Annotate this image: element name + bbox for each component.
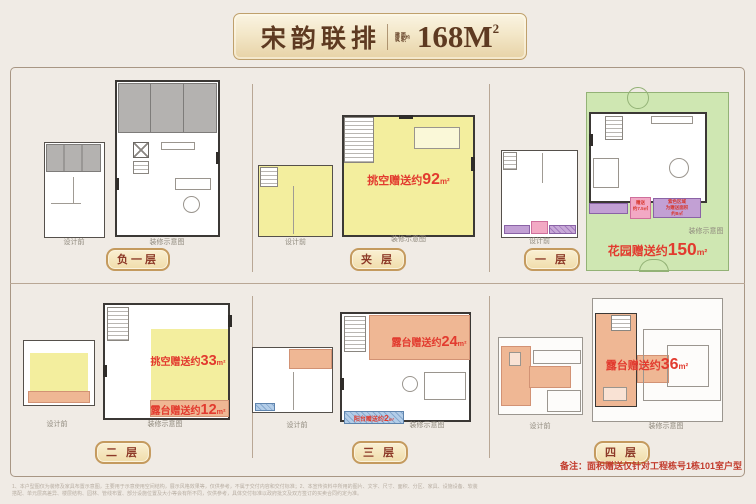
plan-before <box>252 347 333 413</box>
storage-lockers <box>46 144 101 172</box>
stairs-icon <box>344 316 366 352</box>
roof-outline <box>547 390 581 412</box>
gift-strip-purple <box>589 203 628 214</box>
furniture-outline <box>161 142 195 150</box>
plan-decorated <box>589 112 707 203</box>
plan-before <box>23 340 95 406</box>
panel-mezzanine: 挑空赠送约92m² 设计前 装修示意图 夹 层 <box>254 76 489 276</box>
panel-third-floor: 露台赠送约24m² 阳台赠送约2m² 设计前 装修示意图 三 层 <box>250 290 488 470</box>
gift-annotation-garden: 花园赠送约150m² <box>586 241 729 258</box>
furniture-outline <box>402 376 418 392</box>
interior-wall <box>51 203 81 204</box>
plan-before <box>44 142 105 238</box>
gift-annotation-void: 挑空赠送约92m² <box>342 172 475 188</box>
disclaimer-line-2: 搭配、单元层高差异、楼层结构、园林、管线布置、部分设施位置及大小等会有所不同，仅… <box>12 491 712 498</box>
gift-label: 挑空赠送约 <box>367 175 422 187</box>
area-number: 168M <box>417 19 493 54</box>
gift-annotation-terrace: 露台赠送约36m² <box>597 357 697 373</box>
gift-strip-purple-hatched <box>549 225 576 234</box>
gift-label: 花园赠送约 <box>608 244 668 258</box>
gift-annotation-terrace: 露台赠送约12m² <box>142 403 234 418</box>
furniture-outline <box>175 178 211 190</box>
terrace-area <box>28 391 90 403</box>
caption-after: 装修示意图 <box>342 236 475 244</box>
gift-unit: m² <box>440 177 450 186</box>
roof-outline <box>533 350 581 364</box>
gift-annotation-void: 挑空赠送约33m² <box>142 354 234 369</box>
remark-text: 备注：面积赠送仅针对工程栋号1栋101室户型 <box>560 459 742 472</box>
balcony-area <box>255 403 275 411</box>
area-value: 168M2 <box>417 21 499 52</box>
gift-value: 33 <box>201 353 217 369</box>
area-seal: 建筑 面积 约 <box>394 32 411 42</box>
gift-note-purple: 紫色区域 为赠送面积 约8㎡ <box>653 199 701 217</box>
floor-badge: 负一层 <box>106 248 170 271</box>
furniture-outline <box>183 196 200 213</box>
gift-unit: m² <box>217 358 226 367</box>
interior-wall <box>73 177 74 203</box>
wall-tick <box>116 178 119 190</box>
panel-first-floor: 赠送 约7.5㎡ 紫色区域 为赠送面积 约8㎡ 花园赠送约150m² 设计前 装… <box>491 76 745 276</box>
furniture-outline <box>509 352 521 366</box>
wall-tick <box>103 365 107 377</box>
gift-note-line: 约8㎡ <box>653 211 701 217</box>
floor-badge: 一 层 <box>524 248 580 271</box>
caption-after: 装修示意图 <box>387 422 467 430</box>
wall-tick <box>216 152 219 164</box>
caption-after: 装修示意图 <box>671 228 741 236</box>
gift-box-pink <box>531 221 548 234</box>
gift-value: 36 <box>661 356 679 373</box>
stairs-icon <box>260 167 278 187</box>
panel-basement: 设计前 装修示意图 负一层 <box>18 76 246 276</box>
gift-unit: m² <box>458 339 467 348</box>
caption-before: 设计前 <box>267 422 327 430</box>
divider-vertical <box>252 84 253 272</box>
plan-decorated <box>115 80 220 237</box>
gift-note-line: 约7.5㎡ <box>630 206 651 212</box>
stairs-icon <box>344 117 374 163</box>
stairs-icon <box>107 307 129 341</box>
disclaimer-line-1: 1、本户型图仅为装修及家具布置示意图，主要用于示意使用空间结构，展示风格效果等，… <box>12 484 712 491</box>
plan-before <box>258 165 333 237</box>
dining-table-outline <box>669 158 689 178</box>
gift-label: 挑空赠送约 <box>151 357 201 368</box>
wall-tick <box>340 378 344 390</box>
panel-fourth-floor: 露台赠送约36m² 设计前 装修示意图 四 层 <box>490 290 746 470</box>
stairs-icon <box>133 161 149 174</box>
gift-unit: m² <box>697 247 708 257</box>
void-area <box>30 353 88 393</box>
caption-after: 装修示意图 <box>117 239 217 247</box>
title-divider <box>387 24 388 50</box>
floor-badge: 二 层 <box>95 441 151 464</box>
bed-outline <box>593 158 619 188</box>
terrace-area <box>529 366 571 388</box>
bed-outline <box>424 372 466 400</box>
floor-badge: 三 层 <box>352 441 408 464</box>
gift-unit: m² <box>217 407 226 416</box>
seal-text-col1: 建筑 <box>394 32 399 42</box>
gift-label: 露台赠送约 <box>606 360 661 372</box>
caption-before: 设计前 <box>510 423 570 431</box>
plan-decorated <box>340 312 471 422</box>
wall-tick <box>399 115 413 119</box>
caption-before: 设计前 <box>258 239 333 247</box>
stairs-icon <box>611 315 631 331</box>
elevator-icon <box>133 142 149 158</box>
stairs-icon <box>605 116 623 140</box>
divider-horizontal <box>10 283 745 284</box>
garden-tree-icon <box>627 87 649 109</box>
gift-value: 150 <box>668 239 697 259</box>
wall-tick <box>228 315 232 327</box>
project-title: 宋韵联排 <box>261 19 381 55</box>
gift-label: 阳台赠送约 <box>354 417 384 423</box>
disclaimer-text: 1、本户型图仅为装修及家具布置示意图，主要用于示意使用空间结构，展示风格效果等，… <box>12 484 712 498</box>
floorplan-poster: 宋韵联排 建筑 面积 约 168M2 设计前 装修示 <box>0 0 756 504</box>
caption-before: 设计前 <box>27 421 87 429</box>
gift-value: 12 <box>201 402 217 418</box>
seal-text-col2: 面积 <box>400 32 405 42</box>
title-banner: 宋韵联排 建筑 面积 约 168M2 <box>233 13 527 60</box>
parking-area <box>118 83 217 133</box>
caption-after: 装修示意图 <box>123 421 207 429</box>
garden-gate-icon <box>639 259 669 272</box>
gift-annotation-terrace: 露台赠送约24m² <box>379 335 479 350</box>
panel-second-floor: 挑空赠送约33m² 露台赠送约12m² 设计前 装修示意图 二 层 <box>12 290 252 470</box>
caption-after: 装修示意图 <box>626 423 706 431</box>
caption-before: 设计前 <box>501 238 578 246</box>
furniture-outline <box>414 127 460 149</box>
gift-value: 92 <box>422 171 440 188</box>
floor-badge: 夹 层 <box>350 248 406 271</box>
terrace-area <box>289 349 332 369</box>
plan-before <box>498 337 583 415</box>
wall-tick <box>471 157 475 171</box>
interior-wall <box>293 372 294 410</box>
wall-tick <box>589 134 593 146</box>
area-superscript: 2 <box>493 21 500 36</box>
caption-before: 设计前 <box>34 239 114 247</box>
gift-note-porch: 赠送 约7.5㎡ <box>630 200 651 212</box>
interior-wall <box>293 186 294 234</box>
gift-label: 露台赠送约 <box>392 338 442 349</box>
stairs-icon <box>503 152 517 170</box>
gift-unit: m² <box>679 362 689 371</box>
table-outline <box>603 387 627 401</box>
interior-wall <box>542 153 543 183</box>
seal-text-small: 约 <box>406 35 411 39</box>
gift-label: 露台赠送约 <box>151 406 201 417</box>
gift-value: 24 <box>442 334 458 350</box>
kitchen-counter-outline <box>651 116 693 124</box>
plan-before <box>501 150 578 238</box>
gift-strip-purple <box>504 225 530 234</box>
divider-vertical <box>489 84 490 272</box>
